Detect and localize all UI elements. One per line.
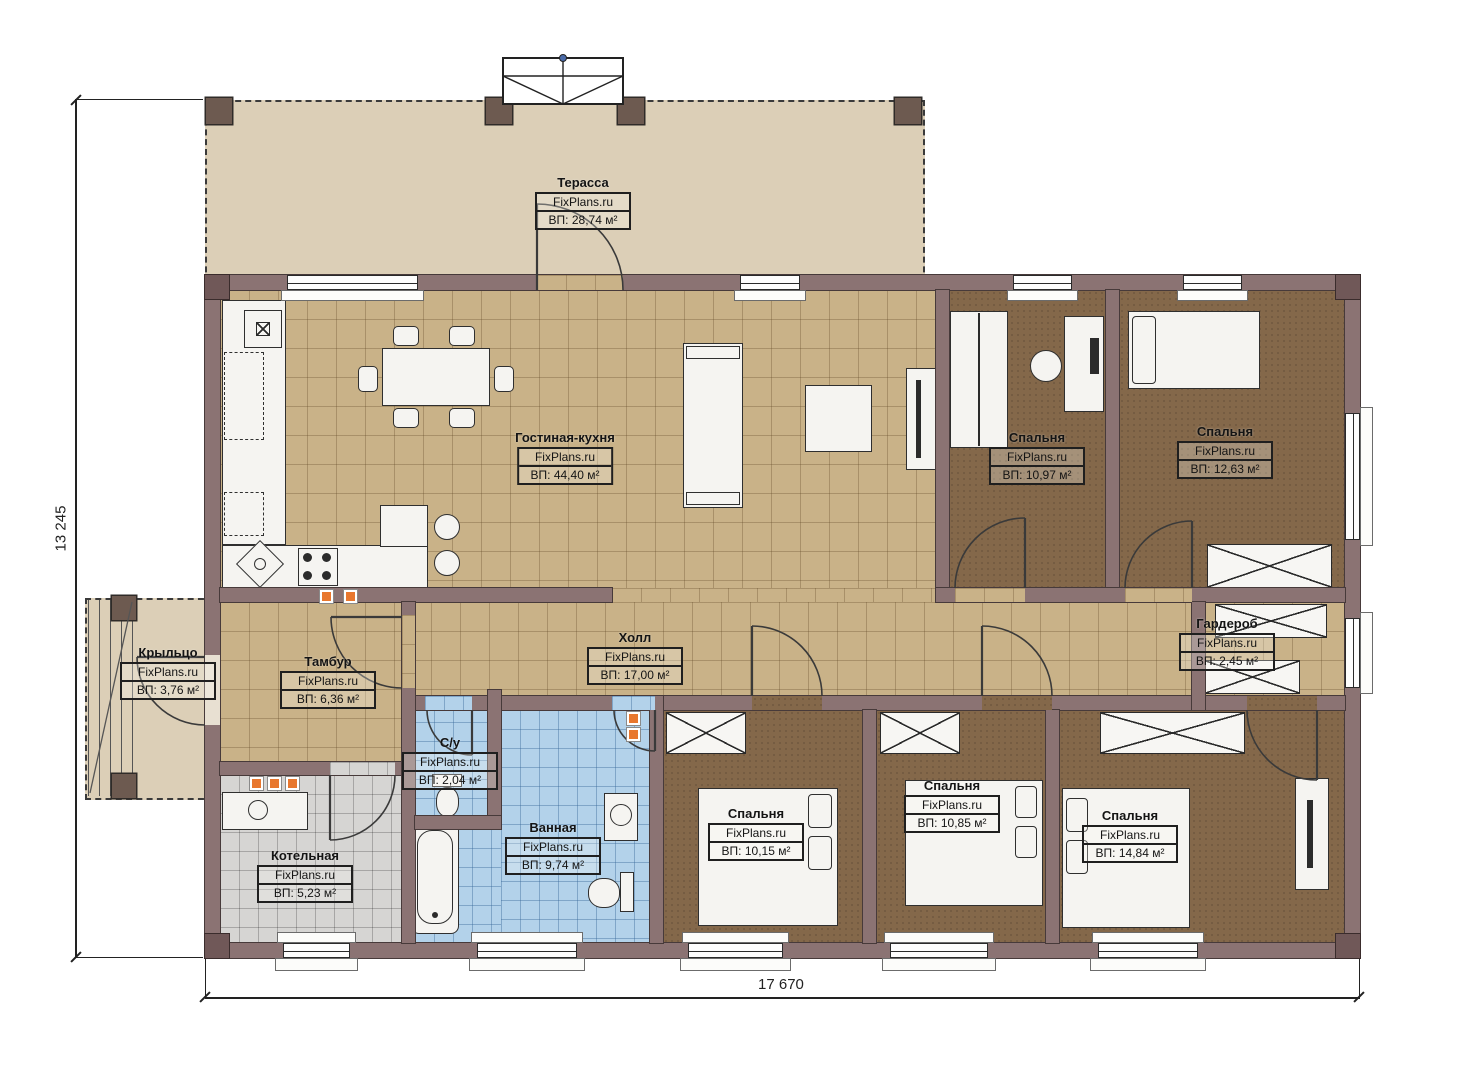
dimension-width: 17 670 (758, 976, 804, 993)
room-area: ВП: 17,00 м² (589, 667, 681, 683)
window-sill (884, 932, 994, 943)
wall-interior (1106, 290, 1119, 602)
watermark: FixPlans.ru (991, 449, 1083, 467)
window-sill (281, 290, 424, 301)
room-area: ВП: 3,76 м² (122, 682, 214, 698)
corner-pad (1336, 934, 1360, 958)
wall-interior (863, 710, 876, 943)
room-name: Спальня (1177, 424, 1273, 439)
heating-marker-icon (344, 590, 357, 603)
door-opening-bedroom-4 (982, 696, 1052, 710)
window-sill (734, 290, 806, 301)
window-sill (471, 932, 583, 943)
wardrobe-divider (978, 313, 980, 446)
room-name: Крыльцо (120, 645, 216, 660)
wall-interior (415, 816, 501, 829)
window-sill (1177, 290, 1248, 301)
room-name: Спальня (1082, 808, 1178, 823)
window (1183, 275, 1242, 290)
room-name: Спальня (989, 430, 1085, 445)
label-bathroom: Ванная FixPlans.ruВП: 9,74 м² (505, 820, 601, 875)
label-terrace: Терасса FixPlans.ruВП: 28,74 м² (535, 175, 631, 230)
wall-outer-right (1345, 275, 1360, 958)
washer-door-icon (610, 804, 632, 826)
window-sill (1007, 290, 1078, 301)
tv-icon (1307, 800, 1313, 868)
chair (449, 408, 475, 428)
window (740, 275, 800, 290)
extension-line (75, 99, 203, 100)
label-bedroom-1: Спальня FixPlans.ruВП: 10,97 м² (989, 430, 1085, 485)
label-living-kitchen: Гостиная-кухня FixPlans.ruВП: 44,40 м² (515, 430, 615, 485)
wardrobe-cabinet (666, 712, 746, 754)
room-area: ВП: 28,74 м² (537, 212, 629, 228)
label-boiler: Котельная FixPlans.ruВП: 5,23 м² (257, 848, 353, 903)
heating-marker-icon (286, 777, 299, 790)
floor-plan: 13 245 17 670 (0, 0, 1473, 1080)
label-bedroom-4: Спальня FixPlans.ruВП: 10,85 м² (904, 778, 1000, 833)
pillow (1015, 786, 1037, 818)
heating-marker-icon (268, 777, 281, 790)
window-sill (680, 958, 791, 971)
door-opening-bedroom-5 (1247, 696, 1317, 710)
sofa-armrest (686, 492, 740, 505)
watermark: FixPlans.ru (537, 194, 629, 212)
heating-marker-icon (320, 590, 333, 603)
porch-column (112, 596, 136, 620)
door-opening-wc (425, 696, 472, 710)
window-sill (882, 958, 996, 971)
window-sill (1090, 958, 1206, 971)
door-opening-bathroom (612, 696, 655, 710)
monitor-icon (1090, 338, 1099, 374)
watermark: FixPlans.ru (122, 664, 214, 682)
chair (393, 326, 419, 346)
watermark: FixPlans.ru (1179, 443, 1271, 461)
toilet-tank (620, 872, 634, 912)
corner-pad (205, 934, 229, 958)
wall-interior (220, 588, 612, 602)
wardrobe-cabinet (880, 712, 960, 754)
room-area: ВП: 44,40 м² (519, 467, 611, 483)
room-hall (402, 602, 1192, 696)
chair (358, 366, 378, 392)
room-name: Спальня (904, 778, 1000, 793)
window (1098, 943, 1198, 958)
window-sill (1092, 932, 1204, 943)
burner-icon (322, 553, 331, 562)
label-tambour: Тамбур FixPlans.ruВП: 6,36 м² (280, 654, 376, 709)
room-area: ВП: 10,85 м² (906, 815, 998, 831)
porch-column (112, 774, 136, 798)
watermark: FixPlans.ru (1084, 827, 1176, 845)
room-name: Спальня (708, 806, 804, 821)
heating-marker-icon (627, 712, 640, 725)
desk-chair (1030, 350, 1062, 382)
watermark: FixPlans.ru (1181, 635, 1273, 653)
pillow (808, 836, 832, 870)
watermark: FixPlans.ru (507, 839, 599, 857)
burner-icon (303, 571, 312, 580)
window (287, 275, 418, 290)
terrace-column (206, 98, 232, 124)
terrace-column (895, 98, 921, 124)
window-sill (277, 932, 356, 943)
label-bedroom-3: Спальня FixPlans.ruВП: 10,15 м² (708, 806, 804, 861)
sofa (683, 343, 743, 508)
chair (393, 408, 419, 428)
watermark: FixPlans.ru (906, 797, 998, 815)
room-area: ВП: 6,36 м² (282, 691, 374, 707)
door-opening-tambour (402, 615, 415, 688)
room-area: ВП: 2,04 м² (404, 772, 496, 788)
room-name: Ванная (505, 820, 601, 835)
window (477, 943, 577, 958)
corner-pad (205, 275, 229, 299)
window (283, 943, 350, 958)
dimension-line-bottom (205, 997, 1360, 999)
chair (449, 326, 475, 346)
toilet-bowl (588, 878, 620, 908)
pillow (808, 794, 832, 828)
watermark: FixPlans.ru (519, 449, 611, 467)
kitchen-cabinet (224, 492, 264, 536)
sink-drain (254, 558, 266, 570)
room-area: ВП: 12,63 м² (1179, 461, 1271, 477)
kitchen-island (380, 505, 428, 547)
bathtub-inner (417, 830, 453, 924)
window-sill (469, 958, 585, 971)
extension-line (1359, 958, 1360, 998)
wardrobe-cabinet (1207, 544, 1332, 588)
window (1345, 618, 1360, 688)
window-sill (1360, 407, 1373, 546)
chair (494, 366, 514, 392)
living-hall-opening (612, 588, 936, 602)
room-area: ВП: 10,15 м² (710, 843, 802, 859)
sofa-armrest (686, 346, 740, 359)
pillow (1132, 316, 1156, 384)
drain-icon (432, 912, 438, 918)
bar-stool (434, 514, 460, 540)
wall-interior (650, 696, 663, 943)
room-area: ВП: 10,97 м² (991, 467, 1083, 483)
label-wc: С/у FixPlans.ruВП: 2,04 м² (402, 735, 498, 790)
watermark: FixPlans.ru (710, 825, 802, 843)
wall-interior (936, 290, 949, 602)
watermark: FixPlans.ru (259, 867, 351, 885)
pillow (1015, 826, 1037, 858)
tv-icon (916, 380, 921, 458)
room-area: ВП: 14,84 м² (1084, 845, 1176, 861)
extension-line (205, 958, 206, 998)
dimension-height: 13 245 (52, 506, 69, 552)
room-name: Терасса (535, 175, 631, 190)
room-area: ВП: 9,74 м² (507, 857, 599, 873)
burner-icon (322, 571, 331, 580)
room-name: Холл (587, 630, 683, 645)
vent-cross-icon (256, 322, 270, 336)
room-name: Гостиная-кухня (515, 430, 615, 445)
room-area: ВП: 5,23 м² (259, 885, 351, 901)
room-area: ВП: 2,45 м² (1181, 653, 1273, 669)
extension-line (75, 957, 203, 958)
label-porch: Крыльцо FixPlans.ruВП: 3,76 м² (120, 645, 216, 700)
terrace-column (618, 98, 644, 124)
wall-interior (1046, 710, 1059, 943)
dimension-line-left (75, 100, 77, 958)
door-opening-bedroom-2 (1125, 588, 1192, 602)
corner-pad (1336, 275, 1360, 299)
room-name: Котельная (257, 848, 353, 863)
window (890, 943, 988, 958)
window-sill (1360, 612, 1373, 694)
room-name: Тамбур (280, 654, 376, 669)
heating-marker-icon (250, 777, 263, 790)
toilet-bowl (436, 787, 459, 817)
heating-marker-icon (627, 728, 640, 741)
window (1013, 275, 1072, 290)
door-opening-bedroom-1 (955, 588, 1025, 602)
wall-outer-left (205, 275, 220, 958)
window-sill (275, 958, 358, 971)
door-opening-terrace (537, 275, 623, 290)
tv-stand (906, 368, 936, 470)
door-opening-bedroom-3 (752, 696, 822, 710)
burner-icon (303, 553, 312, 562)
label-hall: Холл FixPlans.ruВП: 17,00 м² (587, 630, 683, 685)
label-wardrobe: Гардероб FixPlans.ruВП: 2,45 м² (1179, 616, 1275, 671)
label-bedroom-2: Спальня FixPlans.ruВП: 12,63 м² (1177, 424, 1273, 479)
room-name: Гардероб (1179, 616, 1275, 631)
watermark: FixPlans.ru (589, 649, 681, 667)
watermark: FixPlans.ru (282, 673, 374, 691)
label-bedroom-5: Спальня FixPlans.ruВП: 14,84 м² (1082, 808, 1178, 863)
room-name: С/у (402, 735, 498, 750)
coffee-table (805, 385, 872, 452)
dining-table (382, 348, 490, 406)
watermark: FixPlans.ru (404, 754, 496, 772)
terrace-column (486, 98, 512, 124)
bar-stool (434, 550, 460, 576)
window-sill (682, 932, 789, 943)
window (688, 943, 783, 958)
wardrobe-cabinet (1100, 712, 1245, 754)
window (1345, 413, 1360, 540)
kitchen-cabinet (224, 352, 264, 440)
boiler-icon (248, 800, 268, 820)
door-opening-boiler (330, 762, 395, 775)
terrace-deco-icon (503, 55, 623, 105)
